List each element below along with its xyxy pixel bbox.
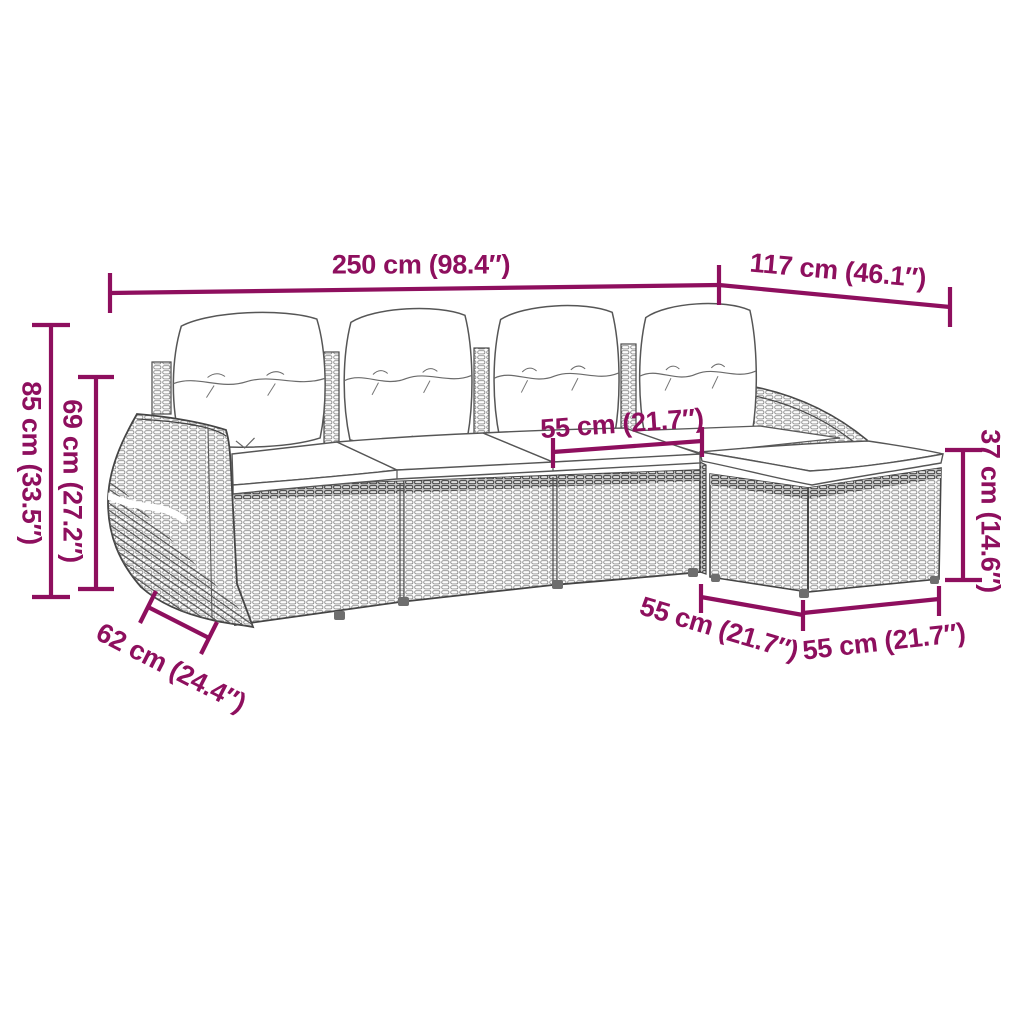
dim-label-stool-height: 37 cm (14.6″): [975, 429, 1006, 593]
dim-label-total-height: 85 cm (33.5″): [16, 381, 47, 545]
back-post-left: [152, 362, 171, 414]
back-cushion-2: [344, 309, 472, 446]
base-right-edge: [700, 462, 706, 574]
ottoman: [700, 441, 943, 598]
product-dimension-diagram: 250 cm (98.4″) 117 cm (46.1″) 85 cm (33.…: [0, 0, 1024, 1024]
ottoman-body: [710, 468, 941, 598]
dim-label-total-width: 250 cm (98.4″): [332, 250, 510, 281]
sofa-illustration: [0, 0, 1024, 1024]
dim-label-back-height: 69 cm (27.2″): [57, 399, 88, 563]
